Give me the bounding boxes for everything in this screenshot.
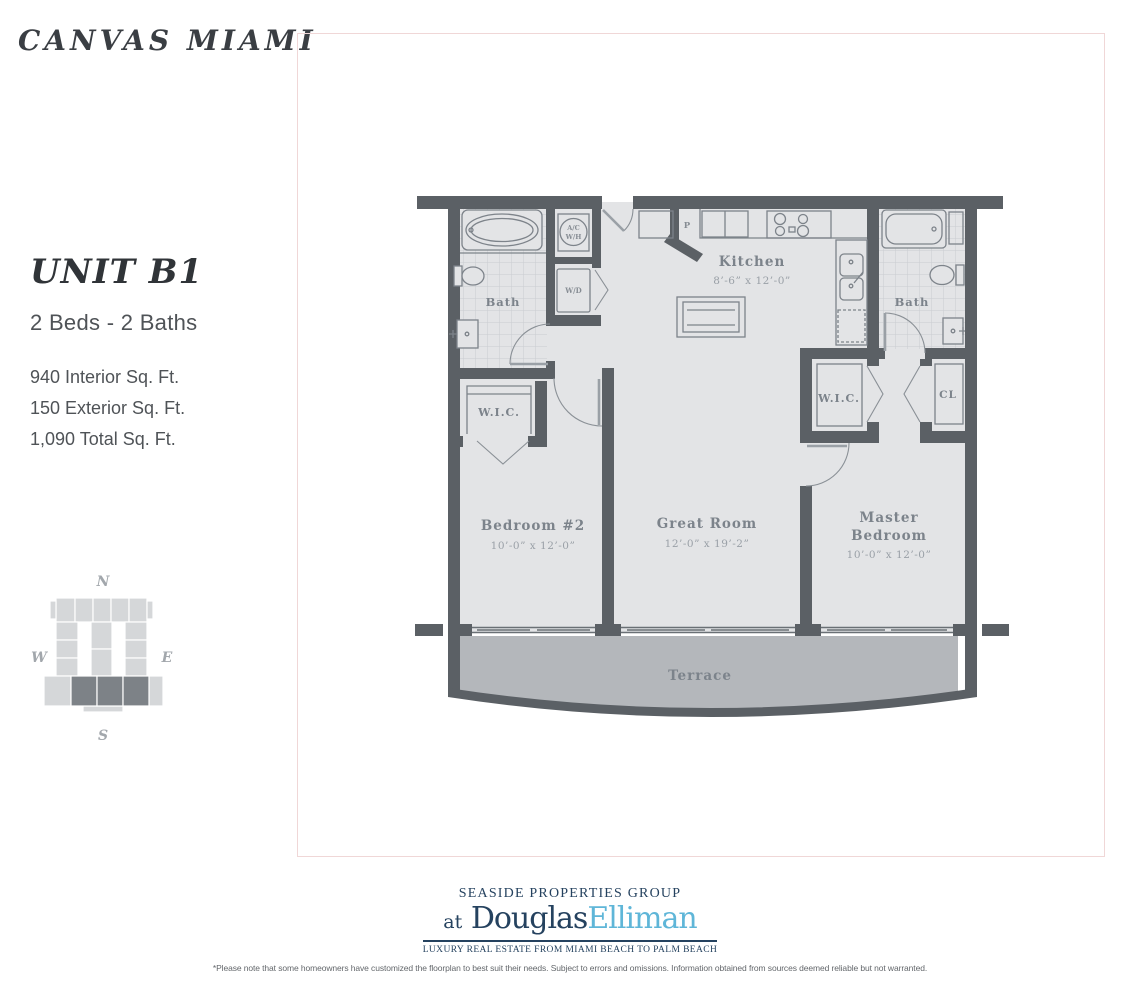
logo-tagline: LUXURY REAL ESTATE FROM MIAMI BEACH TO P… bbox=[423, 945, 718, 955]
logo-douglas: Douglas bbox=[471, 901, 588, 936]
area-total: 1,090 Total Sq. Ft. bbox=[30, 424, 185, 455]
closet-label: CL bbox=[939, 389, 957, 401]
bedroom2-label: Bedroom #2 bbox=[481, 518, 585, 534]
great-room-dims: 12’-0” x 19’-2” bbox=[665, 538, 750, 550]
area-summary: 940 Interior Sq. Ft. 150 Exterior Sq. Ft… bbox=[30, 362, 185, 455]
wic-left-label: W.I.C. bbox=[477, 406, 520, 419]
bath-right-label: Bath bbox=[895, 295, 930, 309]
kitchen-dims: 8’-6” x 12’-0” bbox=[713, 275, 791, 287]
wh-label: W/H bbox=[565, 233, 582, 241]
building-keyplate: N W E S bbox=[28, 568, 178, 743]
compass-west: W bbox=[31, 650, 48, 666]
bathtub-left bbox=[462, 210, 542, 250]
brokerage-logo: SEASIDE PROPERTIES GROUP at DouglasEllim… bbox=[0, 886, 1140, 957]
great-room-label: Great Room bbox=[657, 516, 757, 532]
unit-name: UNIT B1 bbox=[30, 252, 203, 292]
wd-label: W/D bbox=[564, 286, 582, 295]
logo-at: at bbox=[443, 911, 462, 933]
beds-baths: 2 Beds - 2 Baths bbox=[30, 310, 197, 336]
master-dims: 10’-0” x 12’-0” bbox=[847, 549, 932, 561]
master-label-1: Master bbox=[859, 510, 918, 526]
toilet-left bbox=[454, 266, 462, 286]
unit-location-highlight bbox=[71, 676, 149, 706]
bedroom2-dims: 10’-0” x 12’-0” bbox=[491, 540, 576, 552]
area-exterior: 150 Exterior Sq. Ft. bbox=[30, 393, 185, 424]
terrace-label: Terrace bbox=[668, 668, 732, 684]
floorplan: A/C W/H W/D P bbox=[415, 190, 1010, 730]
logo-group-line: SEASIDE PROPERTIES GROUP bbox=[423, 886, 718, 902]
logo-elliman: Elliman bbox=[587, 901, 696, 936]
sink-left bbox=[457, 320, 478, 348]
logo-rule bbox=[423, 940, 718, 942]
disclaimer-text: *Please note that some homeowners have c… bbox=[0, 963, 1140, 973]
brand-title: CANVAS MIAMI bbox=[18, 24, 317, 57]
wic-right-label: W.I.C. bbox=[817, 392, 860, 405]
logo-brand-line: at DouglasElliman bbox=[423, 902, 718, 939]
toilet-right bbox=[956, 265, 964, 285]
compass-east: E bbox=[161, 650, 173, 666]
bath-left-label: Bath bbox=[486, 295, 521, 309]
kitchen-label: Kitchen bbox=[719, 254, 786, 270]
area-interior: 940 Interior Sq. Ft. bbox=[30, 362, 185, 393]
pantry-label: P bbox=[684, 221, 691, 231]
compass-south: S bbox=[98, 728, 108, 743]
master-label-2: Bedroom bbox=[851, 528, 927, 544]
ac-label: A/C bbox=[566, 224, 580, 232]
compass-north: N bbox=[96, 574, 111, 590]
